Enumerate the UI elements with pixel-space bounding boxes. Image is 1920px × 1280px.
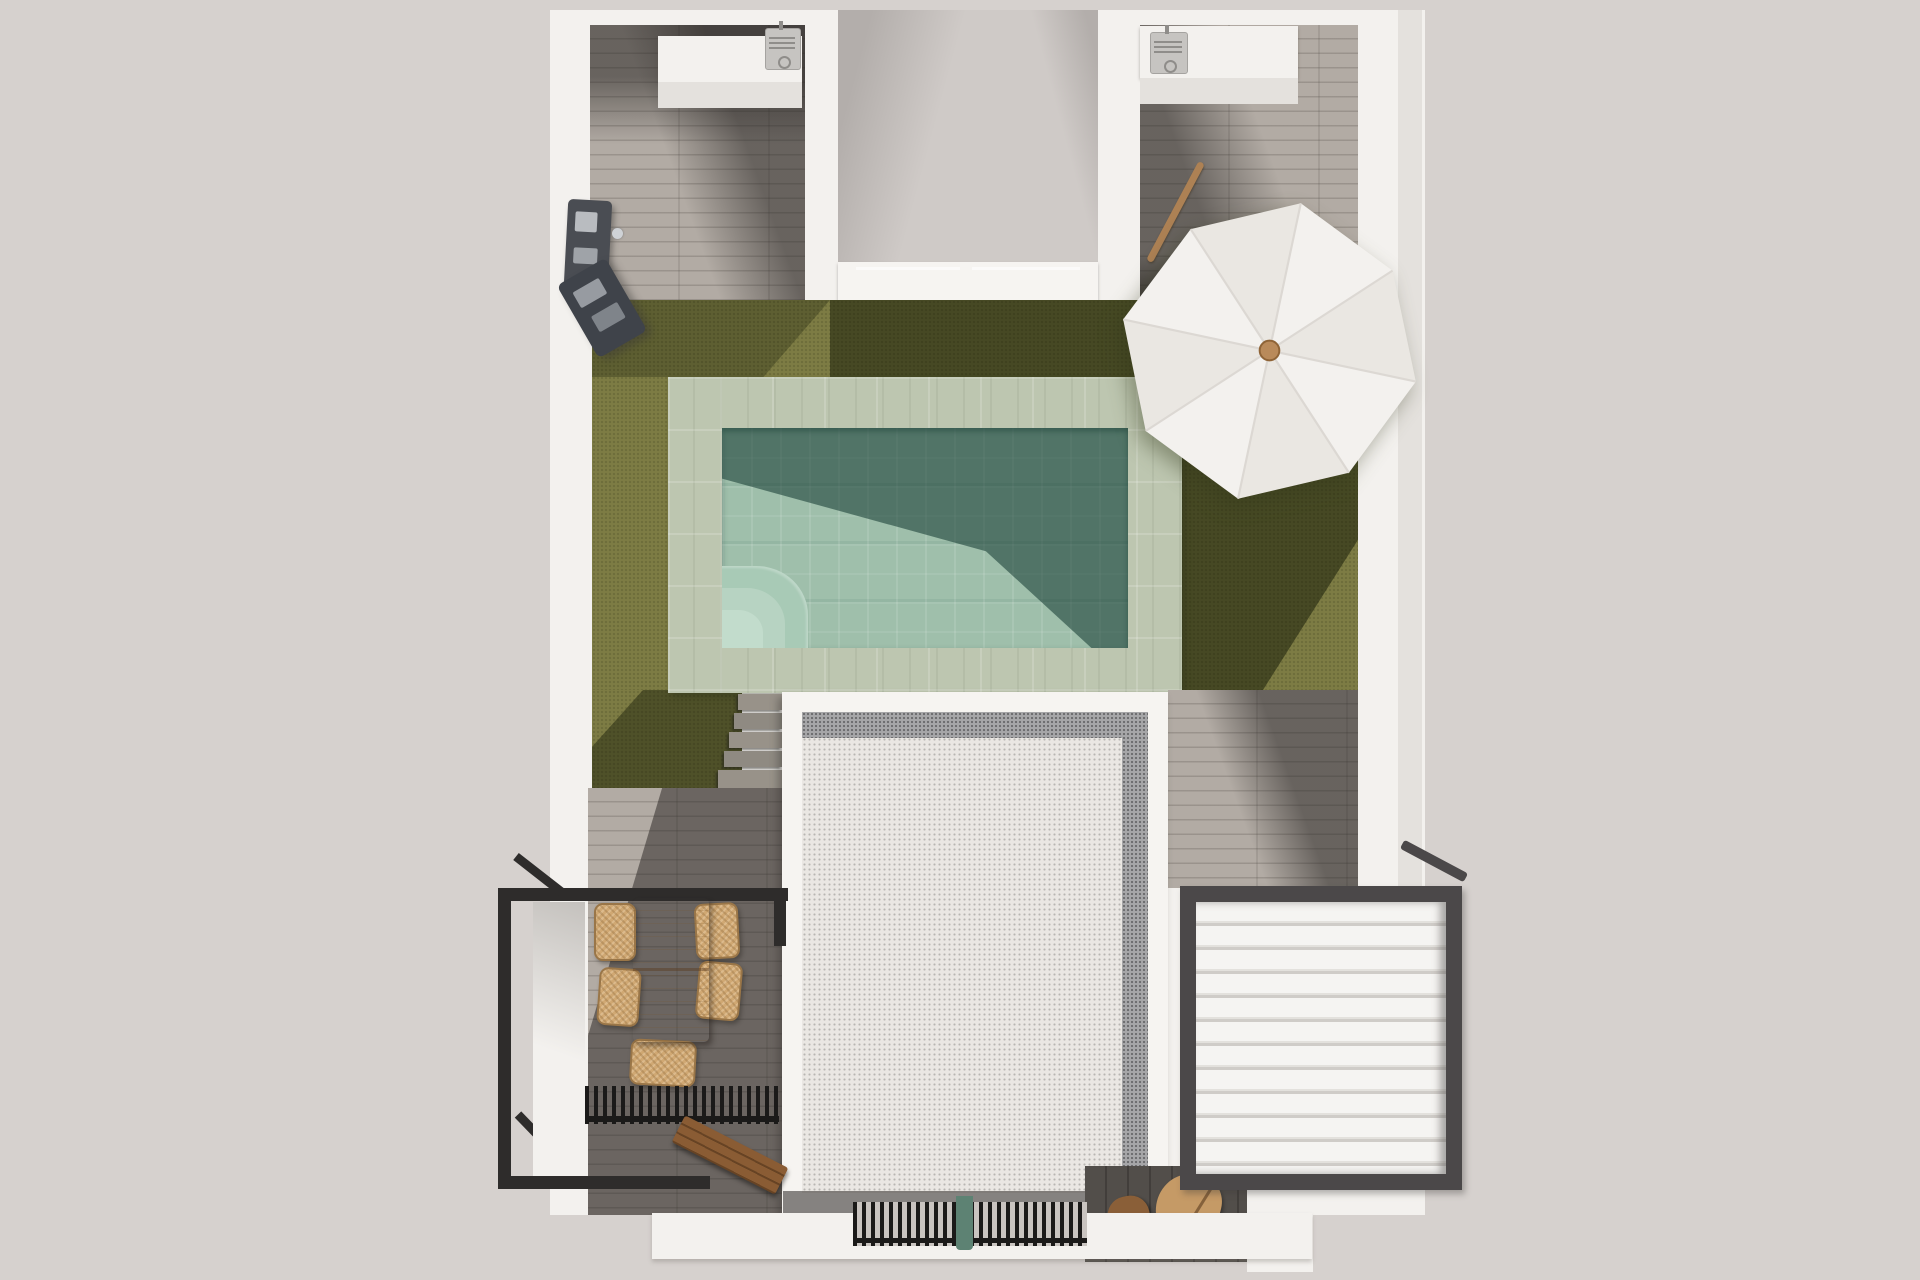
stair-step: [718, 770, 782, 788]
glass-balustrade-edge: [856, 267, 960, 270]
gravel-dark-band-top: [802, 712, 1148, 738]
railing-left-bar: [498, 888, 511, 1189]
ac-unit-right: [1150, 32, 1188, 74]
stair-step: [738, 694, 782, 710]
parasol-canopy: [1123, 203, 1416, 498]
gravel-field: [802, 712, 1148, 1193]
dining-chair-head: [644, 850, 705, 894]
stair-step: [724, 751, 782, 767]
render-canvas: [0, 0, 1920, 1280]
teal-post: [956, 1196, 973, 1250]
ac-pipe: [1165, 25, 1169, 34]
parasol-knob: [1260, 341, 1280, 361]
parasol: [1115, 196, 1425, 506]
shower-slot: [572, 278, 607, 309]
louvered-pergola: [1180, 886, 1462, 1190]
shower-slot: [573, 247, 598, 264]
pergola-louvers: [1196, 902, 1446, 1174]
gravel-roof: [782, 692, 1168, 1213]
terrace-side-wall: [533, 902, 585, 1176]
glass-balustrade-edge: [972, 267, 1080, 270]
right-lower-deck-shadow: [1168, 690, 1358, 888]
ac-grill: [1154, 41, 1182, 55]
gravel-dark-band-right: [1122, 712, 1148, 1193]
dining-chair-foot: [629, 1038, 697, 1087]
dining-table: [633, 898, 709, 1042]
table-seam: [633, 968, 709, 971]
ac-grill: [769, 37, 795, 51]
courtyard-recess: [838, 10, 1098, 302]
terrace-stairs: [718, 694, 782, 794]
ac-fan: [1164, 60, 1177, 73]
ac-fan: [778, 56, 791, 69]
right-lower-deck: [1168, 690, 1358, 888]
railing-right-post: [774, 888, 786, 946]
ac-unit-left: [765, 28, 801, 70]
courtyard-shade: [838, 10, 1098, 302]
outdoor-shower: [560, 200, 630, 360]
stair-step: [729, 732, 782, 748]
pool-water: [722, 428, 1128, 648]
shower-tap: [612, 228, 623, 239]
ac-pipe: [779, 21, 783, 30]
shower-slot: [575, 211, 598, 232]
dining-chair-left-1: [594, 903, 636, 961]
shower-slot: [591, 302, 626, 333]
left-roof-cabinet-face: [658, 82, 802, 108]
railing-bottom-bar: [498, 1176, 710, 1189]
right-roof-cabinet-face: [1140, 78, 1298, 104]
stair-step: [734, 713, 782, 729]
courtyard-parapet: [838, 262, 1098, 302]
